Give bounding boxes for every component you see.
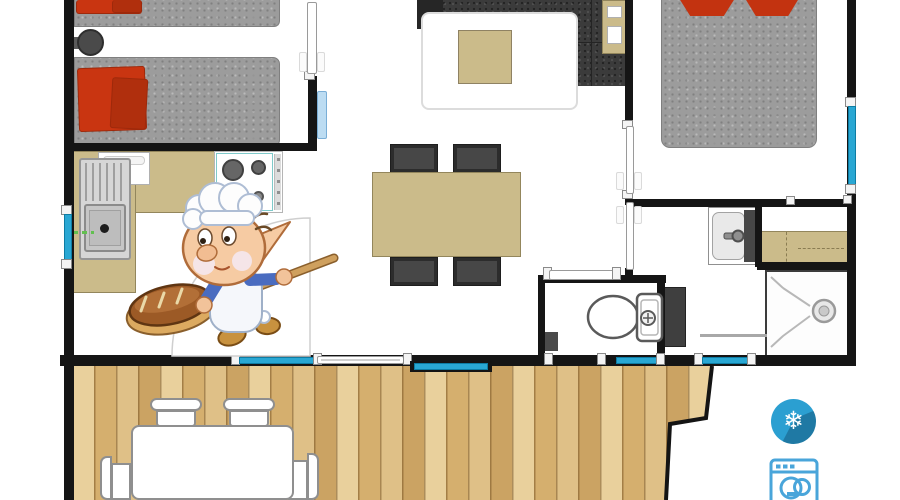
hob-burner [224, 188, 239, 203]
towel-bar [700, 334, 767, 337]
wall-living-master [625, 0, 633, 128]
window-frame-cap [747, 353, 756, 365]
master-bedroom-door [626, 126, 634, 194]
door-frame-cap [612, 267, 621, 280]
twin-bedroom-door [307, 2, 317, 74]
wall-cap [786, 196, 795, 205]
wall-wc-right [657, 283, 665, 356]
door-handle [616, 172, 624, 190]
door-handle [616, 206, 624, 224]
sliding-door-glazing [414, 363, 488, 370]
snowflake-icon: ❄ [771, 399, 816, 444]
dishwasher-icon [769, 458, 819, 500]
door-swing-arc [172, 218, 310, 356]
bed-pillow [112, 0, 142, 13]
toilet [588, 294, 662, 341]
wc-door [549, 270, 615, 280]
window-frame-cap [845, 184, 856, 194]
door-handle [634, 206, 642, 224]
storage-cabinet [664, 287, 686, 347]
window-frame-cap [544, 353, 553, 365]
dining-chair [390, 257, 438, 286]
coffee-table [458, 30, 512, 84]
double-bed [661, 0, 817, 148]
wall-shower-top [757, 262, 852, 270]
door-handle [317, 52, 325, 72]
sink-drain [100, 224, 109, 233]
sofa-seam [591, 0, 592, 86]
dining-table [372, 172, 521, 257]
bed-pillow [110, 77, 149, 130]
door-handle [299, 52, 307, 72]
shower [765, 270, 849, 357]
bathroom-window [702, 357, 748, 364]
wall-tv [317, 91, 327, 139]
bathroom-door [626, 202, 634, 270]
wall-bathroom-inner [755, 207, 762, 267]
hob-burner [251, 160, 266, 175]
wall-wc-left [538, 275, 545, 357]
wall-twin-bedroom-kitchen [64, 143, 315, 151]
door-handle [634, 172, 642, 190]
air-conditioning-badge: ❄ [771, 399, 816, 444]
shelf-notch [607, 6, 622, 18]
wall-cap [843, 195, 852, 204]
door-rail-line [321, 359, 400, 361]
hob-controls [274, 154, 281, 210]
wall-twin-bedroom-living [308, 76, 317, 151]
worktop-dash [798, 248, 844, 249]
dining-chair [453, 257, 501, 286]
sink-drainer [85, 163, 125, 201]
outdoor-table [131, 425, 294, 500]
hob-burner [253, 191, 264, 202]
round-nightstand [77, 29, 104, 56]
window-frame-cap [656, 353, 665, 365]
dining-chair [390, 144, 438, 173]
washbasin [712, 212, 745, 260]
hob-burner [222, 159, 244, 181]
dining-chair [453, 144, 501, 173]
shelf-notch [607, 26, 622, 44]
kitchen-window [64, 214, 72, 261]
window-frame-cap [597, 353, 606, 365]
wc-window [616, 357, 657, 364]
wall-master-bathroom [629, 199, 852, 207]
outdoor-chair-seat [111, 463, 131, 500]
floor-plan-canvas: ❄ [0, 0, 900, 500]
master-bedroom-window [848, 106, 856, 186]
patio-glazing [239, 357, 315, 364]
window-frame-cap [61, 259, 72, 269]
outdoor-chair-back [307, 453, 319, 500]
